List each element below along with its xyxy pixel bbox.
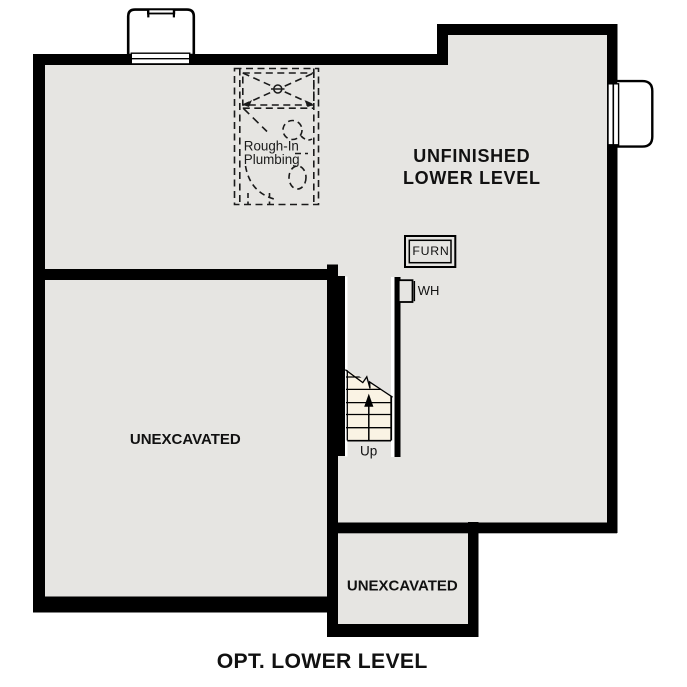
svg-text:UNEXCAVATED: UNEXCAVATED <box>347 577 458 594</box>
svg-text:Up: Up <box>360 444 377 459</box>
svg-text:WH: WH <box>418 283 440 298</box>
svg-text:Plumbing: Plumbing <box>244 152 300 167</box>
svg-text:FURN: FURN <box>412 244 449 258</box>
svg-text:UNEXCAVATED: UNEXCAVATED <box>130 431 241 448</box>
svg-text:UNFINISHED: UNFINISHED <box>413 146 530 166</box>
svg-text:OPT. LOWER LEVEL: OPT. LOWER LEVEL <box>217 650 428 673</box>
svg-text:LOWER LEVEL: LOWER LEVEL <box>403 168 541 188</box>
